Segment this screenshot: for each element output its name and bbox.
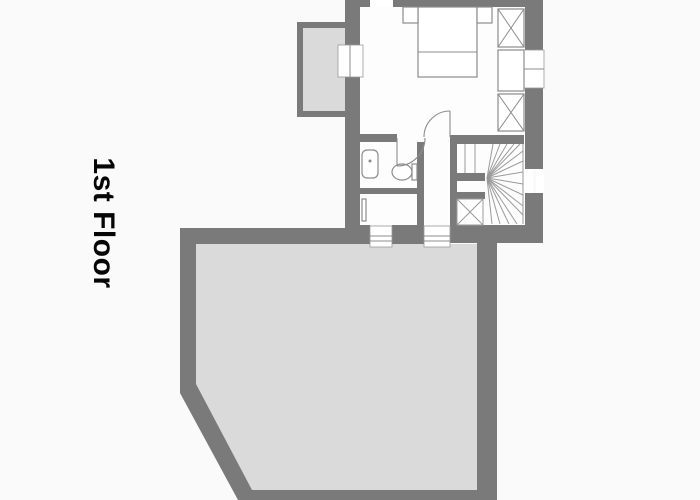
- terrace-bottom-wall: [238, 490, 497, 500]
- right-wall: [525, 88, 543, 169]
- top-wall: [345, 0, 370, 7]
- bed: [418, 7, 477, 77]
- bath-hall-wall: [417, 142, 424, 225]
- window-top: [370, 0, 393, 7]
- right-wall: [525, 7, 543, 50]
- bottom-wall: [345, 225, 370, 244]
- floor-plan-svg: [0, 0, 700, 500]
- terrace-left-wall: [180, 228, 196, 388]
- toilet-tank: [412, 164, 417, 180]
- toilet-bowl: [392, 164, 412, 180]
- bottom-wall: [450, 225, 543, 243]
- stair-newel-wall: [457, 173, 485, 181]
- bath-mid-wall: [360, 188, 424, 194]
- terrace-top-wall: [180, 228, 345, 244]
- sink-faucet: [369, 160, 372, 163]
- stair-top-wall: [450, 135, 524, 144]
- balcony-wall: [297, 22, 303, 117]
- window-right-lower: [536, 169, 544, 193]
- terrace-right-wall: [477, 243, 497, 500]
- balcony-wall: [297, 22, 345, 28]
- bath-top-wall: [360, 134, 397, 142]
- window-right-lower: [524, 169, 533, 193]
- closet: [498, 50, 524, 91]
- radiator: [362, 199, 366, 221]
- terrace-floor: [196, 244, 477, 490]
- top-wall: [393, 0, 543, 7]
- floor-plan-page: 1st Floor: [0, 0, 700, 500]
- left-wall: [345, 77, 360, 228]
- sink: [362, 150, 378, 178]
- left-wall: [345, 7, 360, 45]
- bottom-wall: [392, 225, 424, 244]
- balcony-wall: [297, 111, 345, 117]
- nightstand: [477, 7, 492, 23]
- nightstand: [403, 7, 418, 23]
- stair-newel-wall: [457, 192, 485, 199]
- hall-stair-wall: [450, 144, 457, 227]
